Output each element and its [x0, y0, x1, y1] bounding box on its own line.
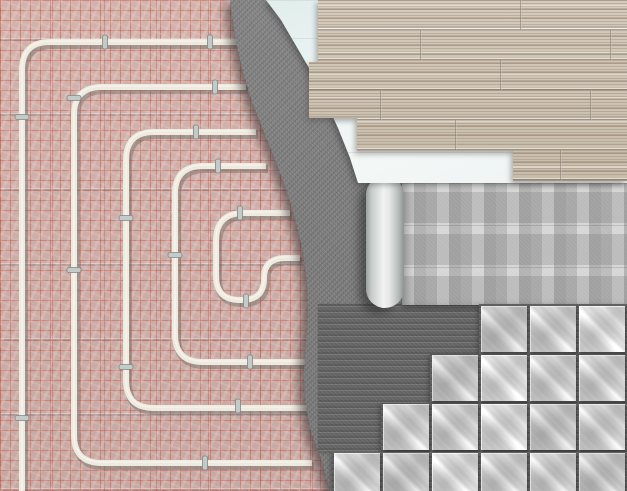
ceramic-tile [530, 453, 576, 491]
ceramic-tile [579, 453, 625, 491]
ceramic-tile [334, 453, 380, 491]
ceramic-tile [481, 306, 527, 352]
ceramic-tile [432, 355, 478, 401]
ceramic-tile-field [0, 0, 627, 491]
ceramic-tile [579, 306, 625, 352]
ceramic-tile [530, 306, 576, 352]
ceramic-tile [579, 404, 625, 450]
ceramic-tile [383, 404, 429, 450]
ceramic-tile [530, 355, 576, 401]
ceramic-tile [481, 355, 527, 401]
ceramic-tile [579, 355, 625, 401]
floor-layers-illustration [0, 0, 627, 491]
ceramic-tile [432, 453, 478, 491]
ceramic-tile [481, 453, 527, 491]
ceramic-tile [481, 404, 527, 450]
ceramic-tiles-wrap [0, 0, 627, 491]
ceramic-tile [530, 404, 576, 450]
ceramic-tile [432, 404, 478, 450]
ceramic-tile [383, 453, 429, 491]
